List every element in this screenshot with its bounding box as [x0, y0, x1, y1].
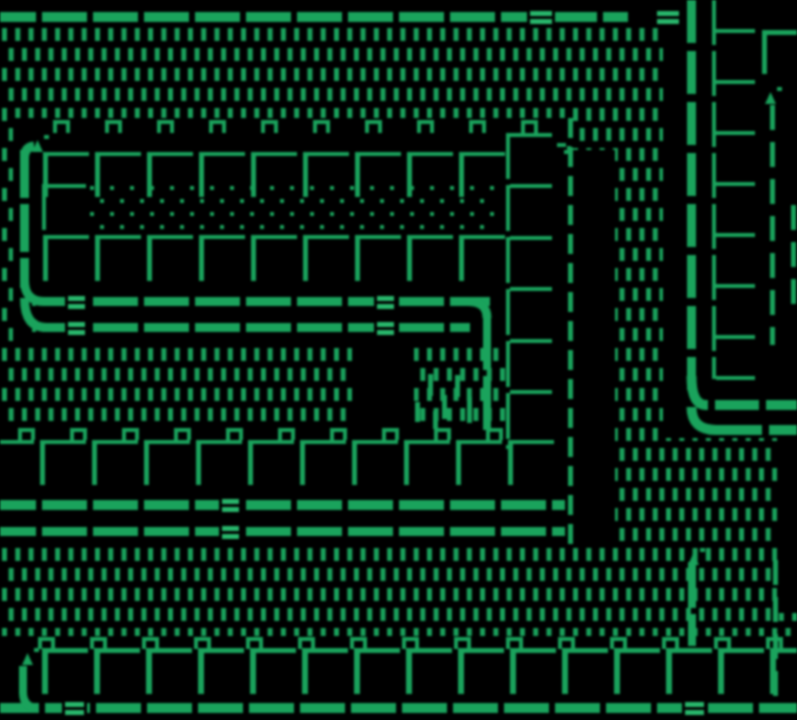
game-screen-canvas[interactable] [0, 0, 797, 720]
game-viewport: Monochrome green tile-map game screen [0, 0, 797, 720]
